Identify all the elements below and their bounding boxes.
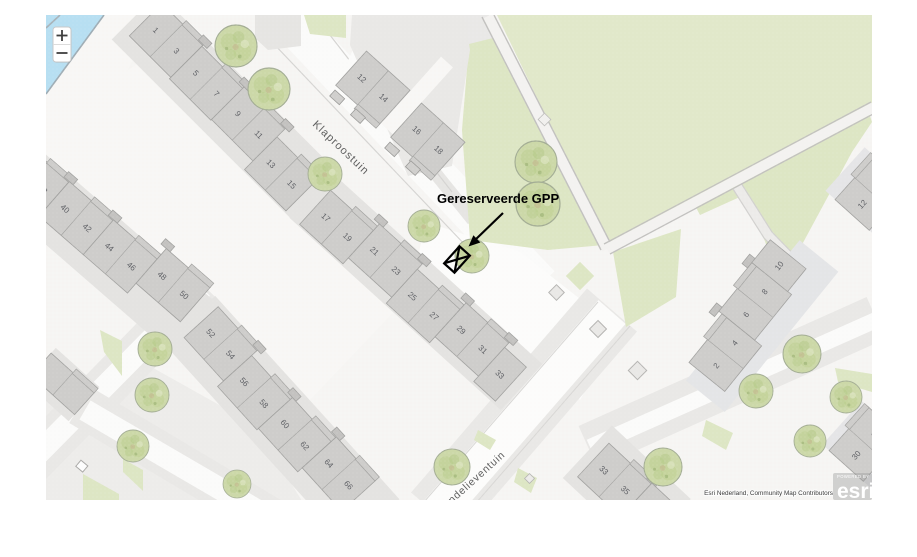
svg-text:Gereserveerde GPP: Gereserveerde GPP (437, 191, 559, 206)
svg-text:esri: esri (837, 480, 874, 503)
svg-text:Esri Nederland, Community Map: Esri Nederland, Community Map Contributo… (704, 490, 833, 497)
svg-text:POWERED BY: POWERED BY (837, 474, 869, 479)
svg-text:14: 14 (876, 176, 889, 189)
svg-text:37: 37 (640, 504, 653, 517)
